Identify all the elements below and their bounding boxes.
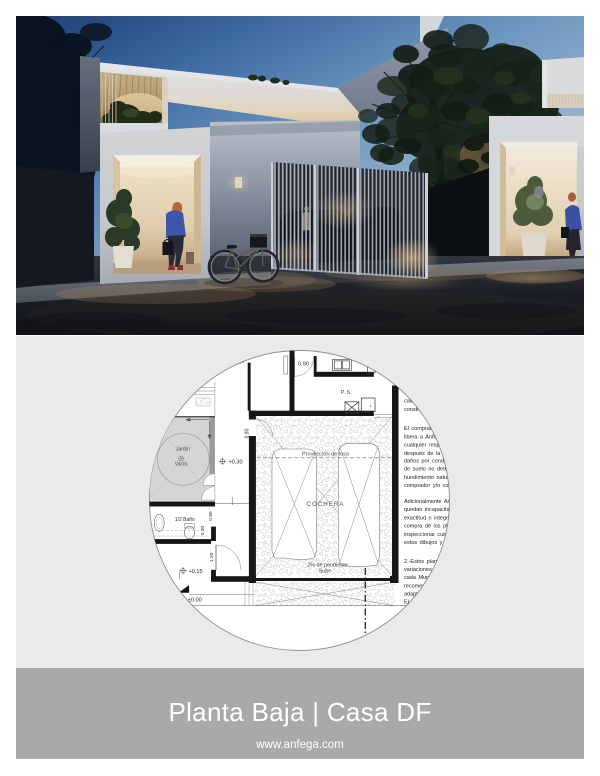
svg-text:exactitud o integridad de: exactitud o integridad de <box>404 515 467 521</box>
svg-text:1.30: 1.30 <box>209 552 215 562</box>
svg-text:recomendarse que sean: recomendarse que sean <box>404 583 465 589</box>
svg-text:Proyección de losa: Proyección de losa <box>302 452 350 458</box>
svg-text:comprador y/o constructor: comprador y/o constructor <box>404 483 470 489</box>
svg-text:COCHERA: COCHERA <box>307 501 345 508</box>
svg-text:0.80: 0.80 <box>208 511 214 521</box>
svg-text:variaciones de acuerdo: variaciones de acuerdo <box>404 567 463 573</box>
svg-text:calidad de los materiales de: calidad de los materiales de <box>404 398 476 404</box>
svg-text:+0.30: +0.30 <box>229 459 243 465</box>
svg-text:0.90: 0.90 <box>298 362 309 368</box>
svg-text:2.-Estos planos tendrán: 2.-Estos planos tendrán <box>404 559 464 565</box>
svg-text:Vacío: Vacío <box>175 462 188 468</box>
svg-text:quedan incapacitados de: quedan incapacitados de <box>404 507 467 513</box>
svg-text:El uso de estos planos: El uso de estos planos <box>404 600 464 606</box>
svg-text:±0.00: ±0.00 <box>188 598 202 604</box>
svg-text:daños por condiciones del: daños por condiciones del <box>404 459 471 465</box>
svg-text:después de la entrega del: después de la entrega del <box>404 451 471 457</box>
svg-text:construcción y acabados del: construcción y acabados del <box>404 407 476 413</box>
svg-text:2% de pendiente: 2% de pendiente <box>307 562 347 568</box>
svg-text:Jardín: Jardín <box>176 447 190 453</box>
svg-text:P.S.: P.S. <box>341 390 353 396</box>
svg-text:estos dibujos y reportar: estos dibujos y reportar <box>404 540 464 546</box>
svg-text:libera a Anfega Arquitectos: libera a Anfega Arquitectos <box>404 435 473 441</box>
svg-text:cada Municipio y deberá: cada Municipio y deberá <box>404 575 468 581</box>
svg-text:Sube: Sube <box>319 569 332 575</box>
svg-text:compra de los planos,: compra de los planos, <box>404 524 461 530</box>
svg-text:0.90: 0.90 <box>245 428 251 438</box>
svg-text:L: L <box>370 404 372 408</box>
svg-text:Adicionalmente Anfega y: Adicionalmente Anfega y <box>404 499 467 505</box>
svg-text:de suelo no detectadas o: de suelo no detectadas o <box>404 467 469 473</box>
svg-text:inspeccionar cuidadosamente: inspeccionar cuidadosamente <box>404 532 478 538</box>
svg-text:+0.15: +0.15 <box>189 569 203 575</box>
svg-text:0.30: 0.30 <box>200 526 206 536</box>
svg-text:1/2 Baño: 1/2 Baño <box>175 517 195 523</box>
svg-text:El comprador reconoce y: El comprador reconoce y <box>404 426 468 432</box>
svg-text:hundimiento natural de la: hundimiento natural de la <box>404 475 470 481</box>
svg-text:adaptados por un perito: adaptados por un perito <box>404 592 465 598</box>
